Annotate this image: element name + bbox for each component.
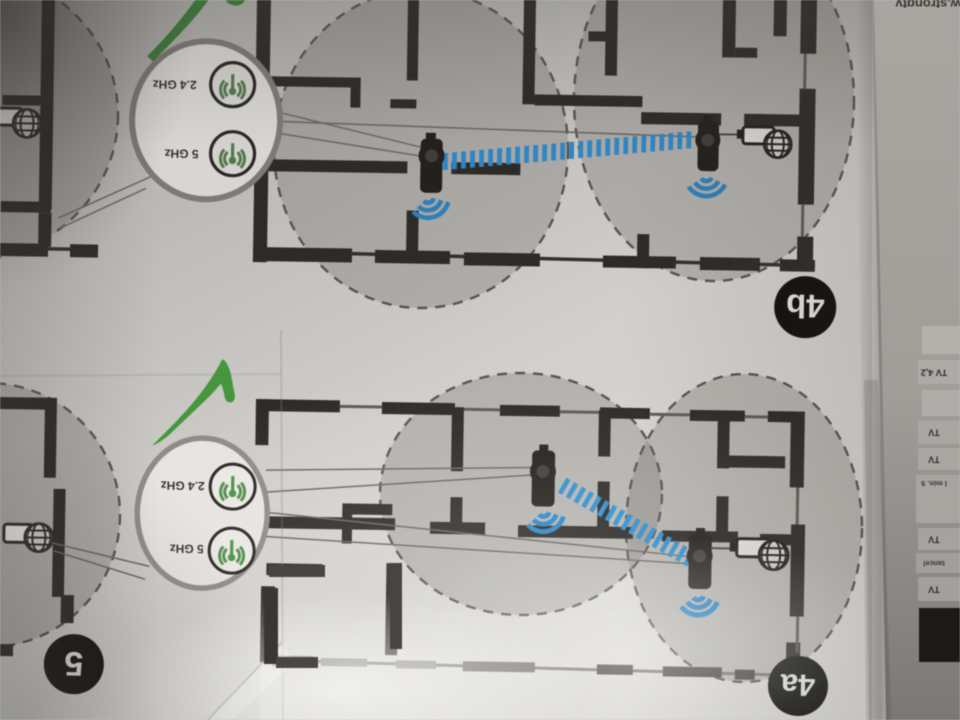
svg-text:tancel: tancel [923,559,945,568]
svg-text:TV: TV [928,428,940,438]
svg-text:w.strongtv: w.strongtv [895,0,960,12]
svg-text:TV 4,2: TV 4,2 [921,368,948,378]
svg-text:l min. 5: l min. 5 [921,479,947,488]
svg-text:TV: TV [928,535,940,545]
svg-text:TV: TV [928,585,940,595]
svg-text:TV: TV [928,455,940,465]
